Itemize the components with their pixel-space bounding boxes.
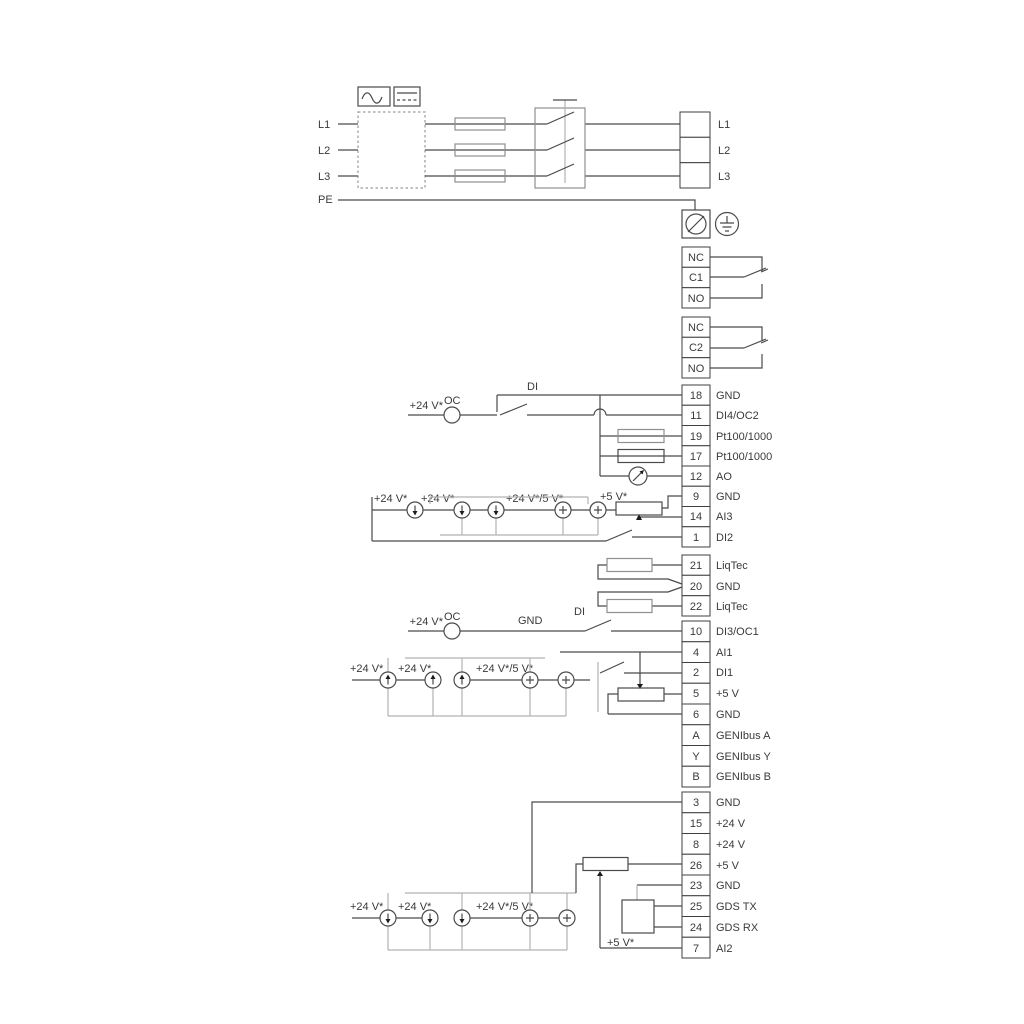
relay1-section: NC C1 NO <box>682 247 768 308</box>
terminal-label: LiqTec <box>716 560 748 572</box>
liqtec-section: 21 20 22 LiqTec GND LiqTec <box>598 555 748 616</box>
current-source-icon <box>425 672 441 688</box>
input-label-l2: L2 <box>318 145 330 157</box>
io3-section: 3 15 8 26 23 25 24 7 GND +24 V +24 V +5 … <box>350 792 759 958</box>
terminal-number: B <box>692 771 699 783</box>
terminal-number: 3 <box>693 797 699 809</box>
terminal-number: 24 <box>690 922 702 934</box>
io1-section: 18 11 19 17 12 9 14 1 GND DI4/OC2 Pt100/… <box>372 381 772 547</box>
plus24-label: +24 V* <box>421 493 455 505</box>
terminal-number: NO <box>688 293 705 305</box>
terminal-number: 6 <box>693 709 699 721</box>
plus5-label: +5 V* <box>600 491 628 503</box>
terminal-number: 21 <box>690 560 702 572</box>
converter-box <box>358 112 425 188</box>
ai1-wires <box>352 652 682 714</box>
terminal-cell <box>680 112 710 137</box>
terminal-number: 10 <box>690 626 702 638</box>
oc-label: OC <box>444 611 461 623</box>
terminal-number: NC <box>688 322 704 334</box>
terminal-number: 1 <box>693 532 699 544</box>
output-label-l1: L1 <box>718 119 730 131</box>
terminal-cell <box>680 163 710 188</box>
terminal-number: C2 <box>689 342 703 354</box>
io2-section: 10 4 2 5 6 A Y B DI3/OC1 AI1 DI1 +5 V GN… <box>350 606 771 787</box>
terminal-number: 26 <box>690 860 702 872</box>
voltage-source-icon <box>522 672 538 688</box>
plus24-label: +24 V* <box>374 493 408 505</box>
output-label-l2: L2 <box>718 145 730 157</box>
terminal-label: GENIbus B <box>716 771 771 783</box>
terminal-number: 20 <box>690 581 702 593</box>
voltage-source-icon <box>559 910 575 926</box>
current-source-icon <box>380 672 396 688</box>
terminal-label: GND <box>716 709 741 721</box>
plus24-label: +24 V* <box>410 400 444 412</box>
input-label-pe: PE <box>318 194 333 206</box>
dc-symbol-icon <box>394 87 420 106</box>
wiring-diagram: L1 L2 L3 PE L1 L2 L3 NC C1 NO <box>0 0 1024 1024</box>
terminal-label: GND <box>716 581 741 593</box>
terminal-label: DI4/OC2 <box>716 410 759 422</box>
gnd-label: GND <box>518 615 543 627</box>
output-label-l3: L3 <box>718 171 730 183</box>
plus24-label: +24 V* <box>398 663 432 675</box>
terminal-number: 7 <box>693 943 699 955</box>
current-source-icon <box>488 502 504 518</box>
terminal-label: LiqTec <box>716 601 748 613</box>
pt100-sensors <box>600 430 682 463</box>
terminal-label: Pt100/1000 <box>716 431 772 443</box>
relay2-contact-icon <box>710 327 768 368</box>
terminal-number: 4 <box>693 647 699 659</box>
potentiometer <box>616 502 662 515</box>
analog-output-meter-icon <box>600 467 682 485</box>
terminal-number: 18 <box>690 390 702 402</box>
power-terminal-block <box>680 112 710 188</box>
current-source-icon <box>407 502 423 518</box>
current-source-icon <box>454 502 470 518</box>
terminal-label: Pt100/1000 <box>716 451 772 463</box>
input-label-l1: L1 <box>318 119 330 131</box>
terminal-label: +5 V <box>716 688 740 700</box>
terminal-label: GND <box>716 390 741 402</box>
terminal-label: GDS RX <box>716 922 759 934</box>
terminal-label: DI2 <box>716 532 733 544</box>
terminal-label: +5 V <box>716 860 740 872</box>
relay2-section: NC C2 NO <box>682 317 768 378</box>
potentiometer <box>618 688 664 701</box>
io3-wires <box>352 802 682 948</box>
terminal-label: GENIbus A <box>716 730 771 742</box>
terminal-number: 14 <box>690 511 702 523</box>
voltage-source-icon <box>558 672 574 688</box>
gds-sensor-box <box>622 900 654 933</box>
voltage-source-icon <box>522 910 538 926</box>
plus24or5-label: +24 V*/5 V* <box>506 493 564 505</box>
current-source-icon <box>380 910 396 926</box>
terminal-label: AI2 <box>716 943 733 955</box>
open-collector-icon <box>444 623 460 639</box>
terminal-number: 15 <box>690 818 702 830</box>
terminal-number: 11 <box>690 410 701 422</box>
input-label-l3: L3 <box>318 171 330 183</box>
potentiometer <box>583 858 628 871</box>
di-label: DI <box>527 381 538 393</box>
terminal-number: A <box>692 730 700 742</box>
terminal-label: AI1 <box>716 647 733 659</box>
ac-symbol-icon <box>358 87 390 106</box>
terminal-number: 25 <box>690 901 702 913</box>
resistor-icon <box>607 600 652 613</box>
terminal-label: AO <box>716 471 732 483</box>
power-section: L1 L2 L3 PE L1 L2 L3 <box>318 87 739 238</box>
terminal-label: +24 V <box>716 839 746 851</box>
diagram-canvas: L1 L2 L3 PE L1 L2 L3 NC C1 NO <box>0 0 1024 1024</box>
terminal-number: 2 <box>693 667 699 679</box>
phase-wires <box>338 124 695 210</box>
terminal-number: NC <box>688 252 704 264</box>
current-source-icon <box>454 910 470 926</box>
voltage-source-icon <box>555 502 571 518</box>
di-label: DI <box>574 606 585 618</box>
terminal-number: 5 <box>693 688 699 700</box>
terminal-number: 22 <box>690 601 702 613</box>
terminal-number: 12 <box>690 471 702 483</box>
terminal-number: 17 <box>690 451 702 463</box>
terminal-number: 8 <box>693 839 699 851</box>
liqtec-wires <box>598 559 682 613</box>
oc-label: OC <box>444 395 461 407</box>
terminal-number: C1 <box>689 272 703 284</box>
terminal-label: GND <box>716 880 741 892</box>
terminal-label: DI3/OC1 <box>716 626 759 638</box>
resistor-icon <box>607 559 652 572</box>
terminal-label: GENIbus Y <box>716 751 771 763</box>
terminal-cell <box>680 137 710 162</box>
plus5-label: +5 V* <box>607 937 635 949</box>
terminal-number: NO <box>688 363 705 375</box>
terminal-number: Y <box>692 751 700 763</box>
plus24-label: +24 V* <box>410 616 444 628</box>
plus24-label: +24 V* <box>350 901 384 913</box>
terminal-label: DI1 <box>716 667 733 679</box>
open-collector-icon <box>444 407 460 423</box>
terminal-number: 23 <box>690 880 702 892</box>
terminal-label: GDS TX <box>716 901 757 913</box>
current-source-icon <box>454 672 470 688</box>
current-source-icon <box>422 910 438 926</box>
terminal-label: GND <box>716 797 741 809</box>
screw-terminal-icon <box>682 210 710 238</box>
earth-ground-icon <box>716 213 739 236</box>
terminal-number: 9 <box>693 491 699 503</box>
relay1-contact-icon <box>710 257 768 298</box>
main-switch-icon <box>535 100 585 188</box>
terminal-label: AI3 <box>716 511 733 523</box>
terminal-number: 19 <box>690 431 702 443</box>
plus24-label: +24 V* <box>350 663 384 675</box>
terminal-label: GND <box>716 491 741 503</box>
voltage-source-icon <box>590 502 606 518</box>
terminal-label: +24 V <box>716 818 746 830</box>
